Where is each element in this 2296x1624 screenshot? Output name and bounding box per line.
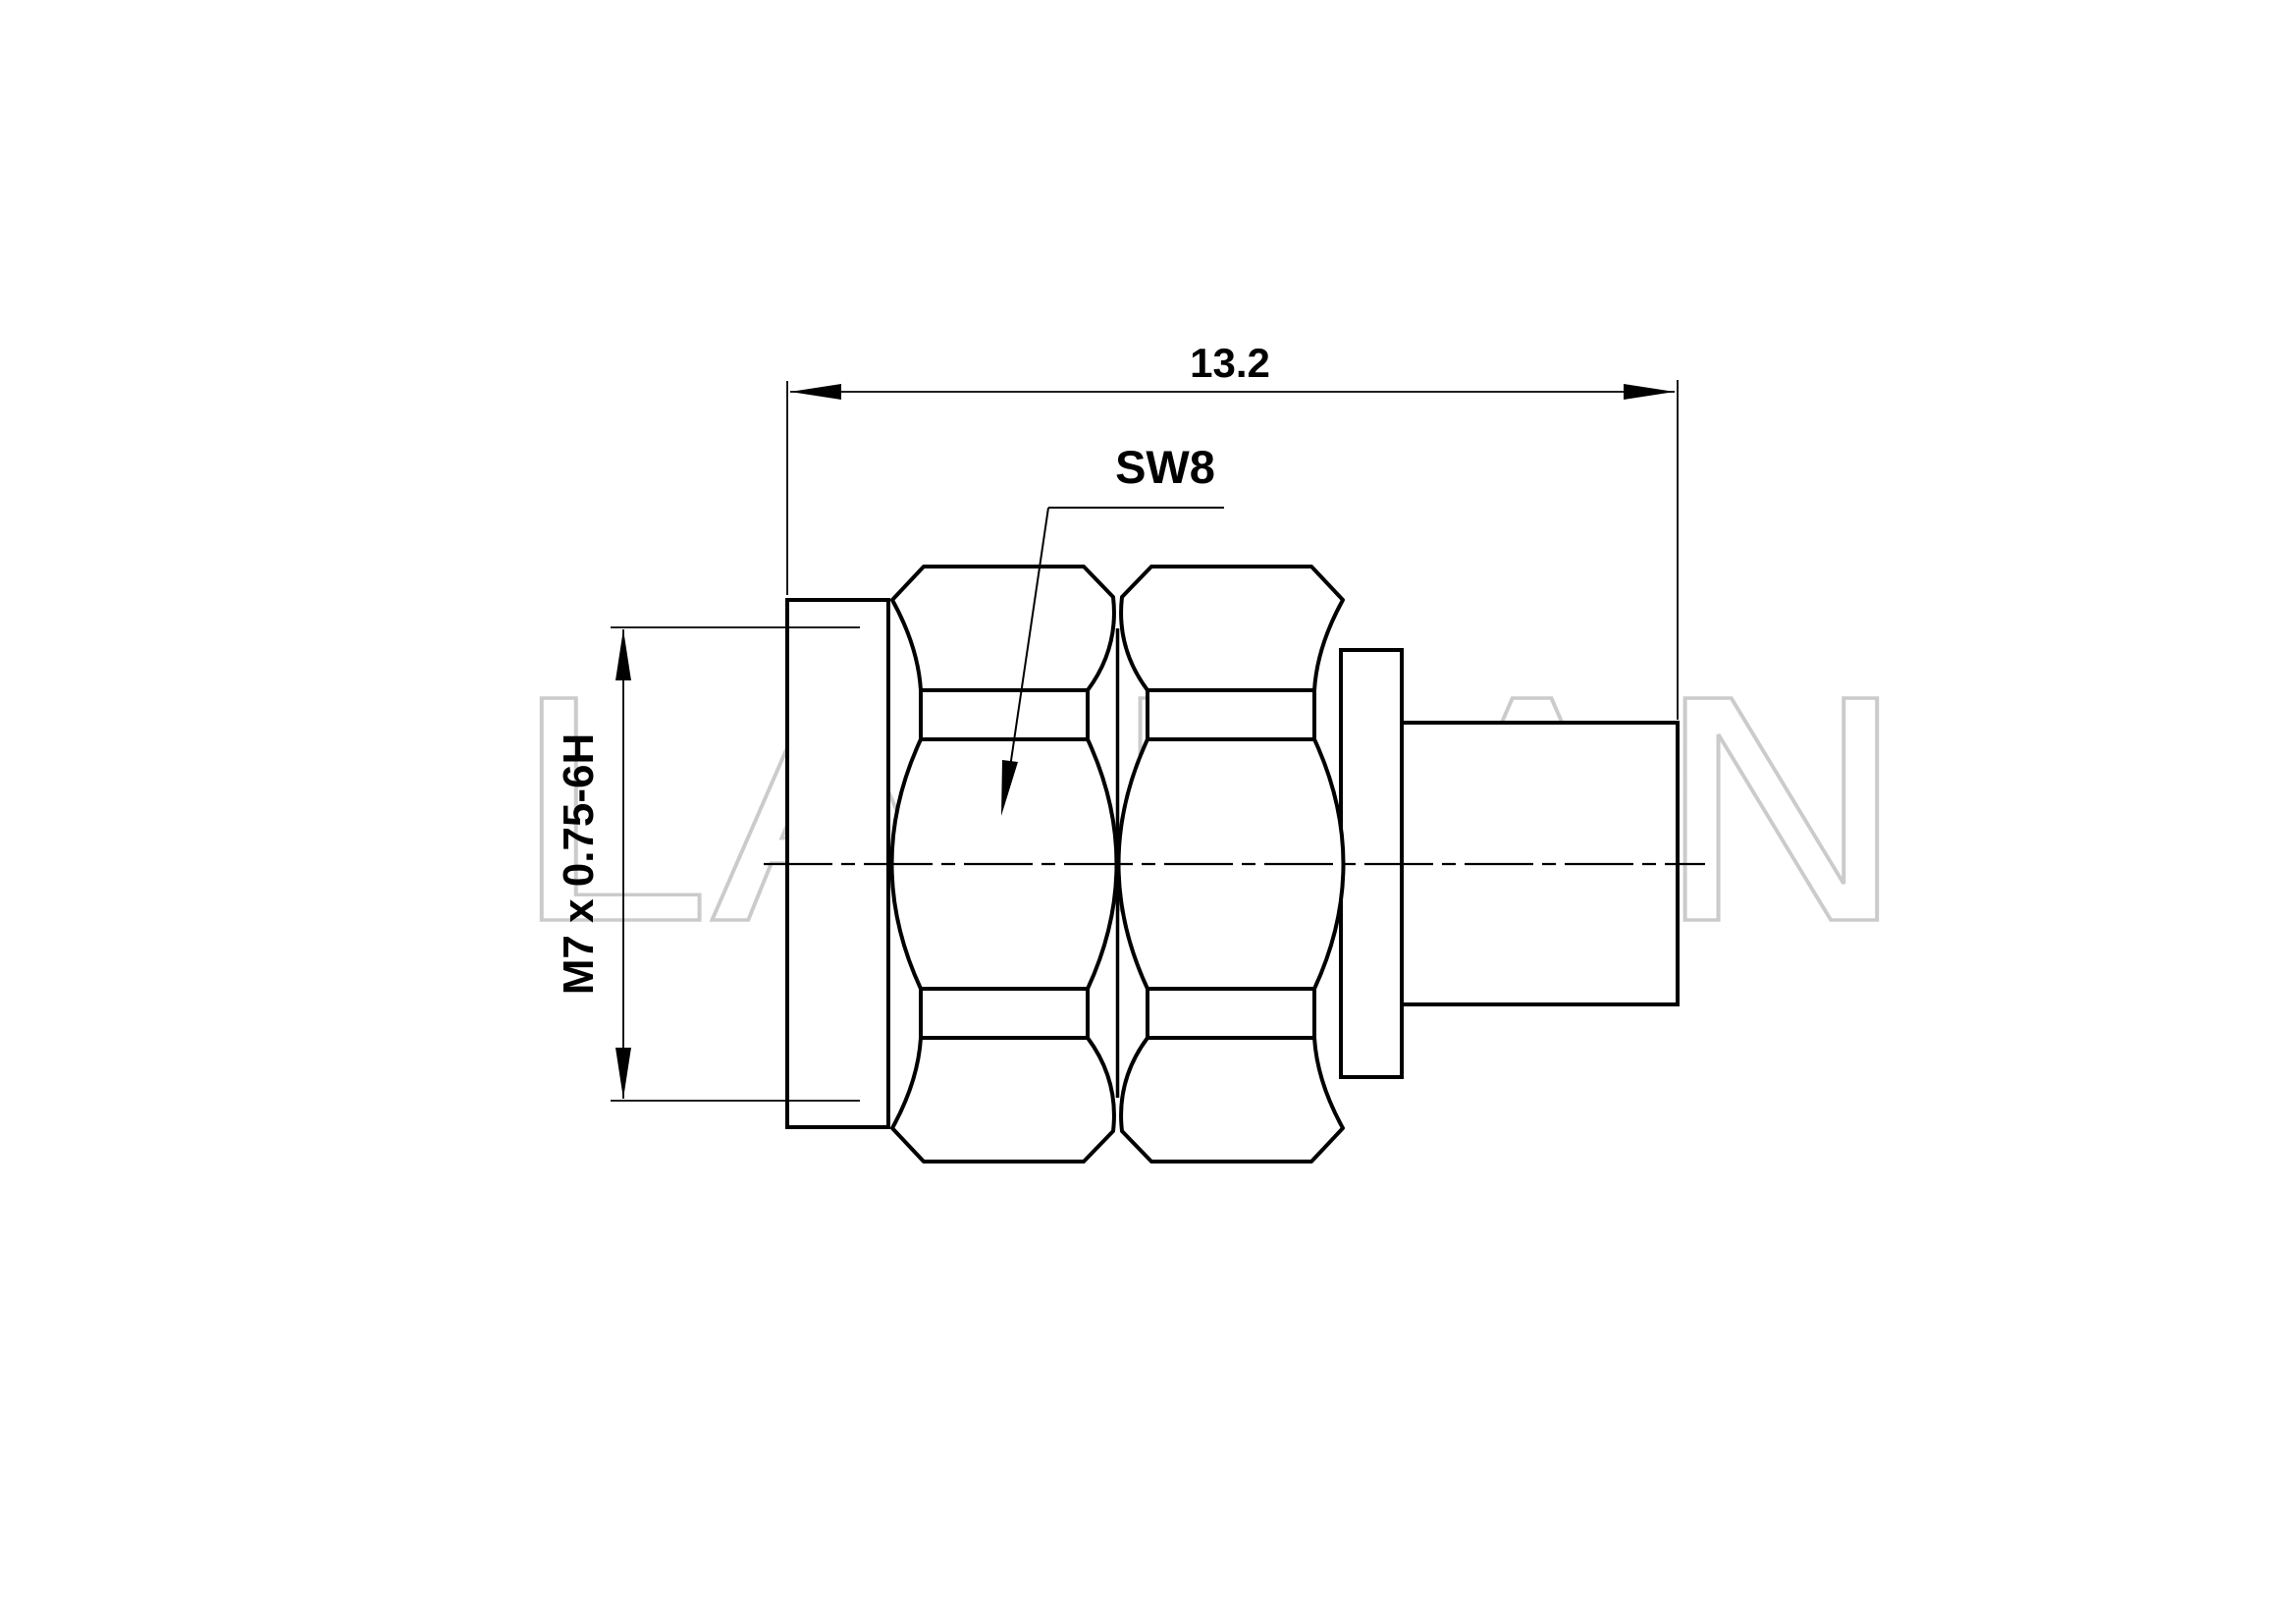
dimension-thread-value: M7 x 0.75-6H	[555, 733, 603, 996]
label-wrench-value: SW8	[1115, 441, 1215, 493]
arrowhead-right-icon	[1624, 384, 1675, 400]
technical-drawing: LANJIAN 1	[0, 0, 2296, 1624]
arrowhead-left-icon	[790, 384, 841, 400]
drawing-sheet: LANJIAN 1	[0, 0, 2296, 1624]
dimension-length-value: 13.2	[1190, 340, 1270, 386]
arrowhead-down-icon	[615, 1048, 631, 1099]
